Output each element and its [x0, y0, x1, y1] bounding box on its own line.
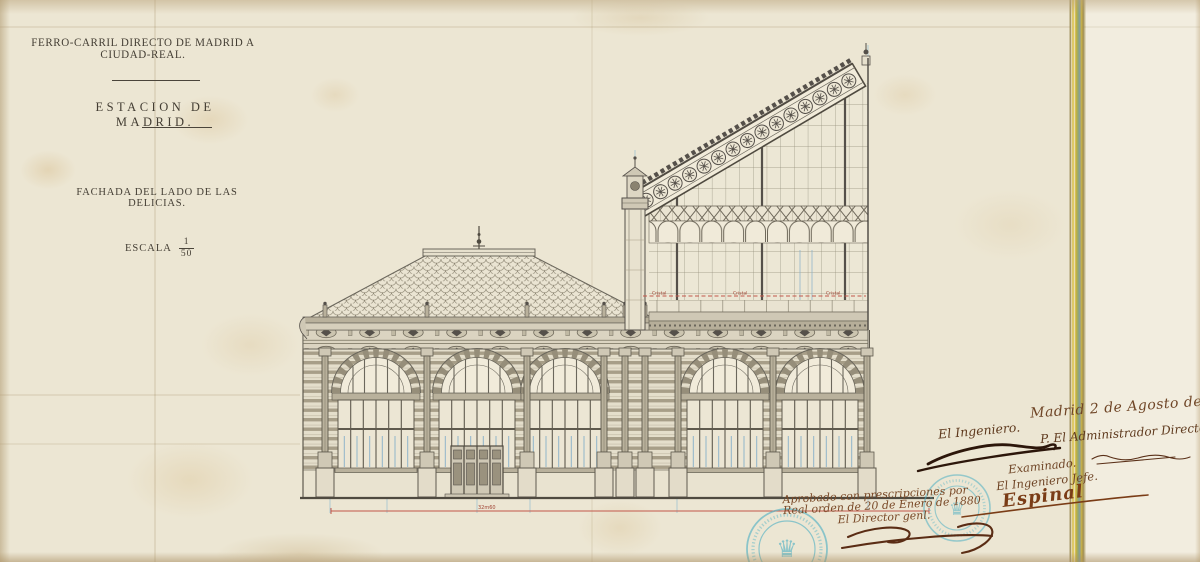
scanned-drawing-sheet: FERRO-CARRIL DIRECTO DE MADRID A CIUDAD-…	[0, 0, 1200, 562]
engineer-signature	[928, 445, 1048, 464]
espinal-underline	[962, 495, 1148, 517]
signature-flourishes	[0, 0, 1200, 562]
sheet-edge-left	[0, 0, 10, 562]
sheet-edge-top	[0, 0, 1200, 14]
director-signature	[842, 523, 992, 553]
sheet-edge-bottom	[0, 552, 1200, 562]
sheet-edge-right	[1195, 0, 1200, 562]
administrator-signature	[1092, 455, 1190, 464]
